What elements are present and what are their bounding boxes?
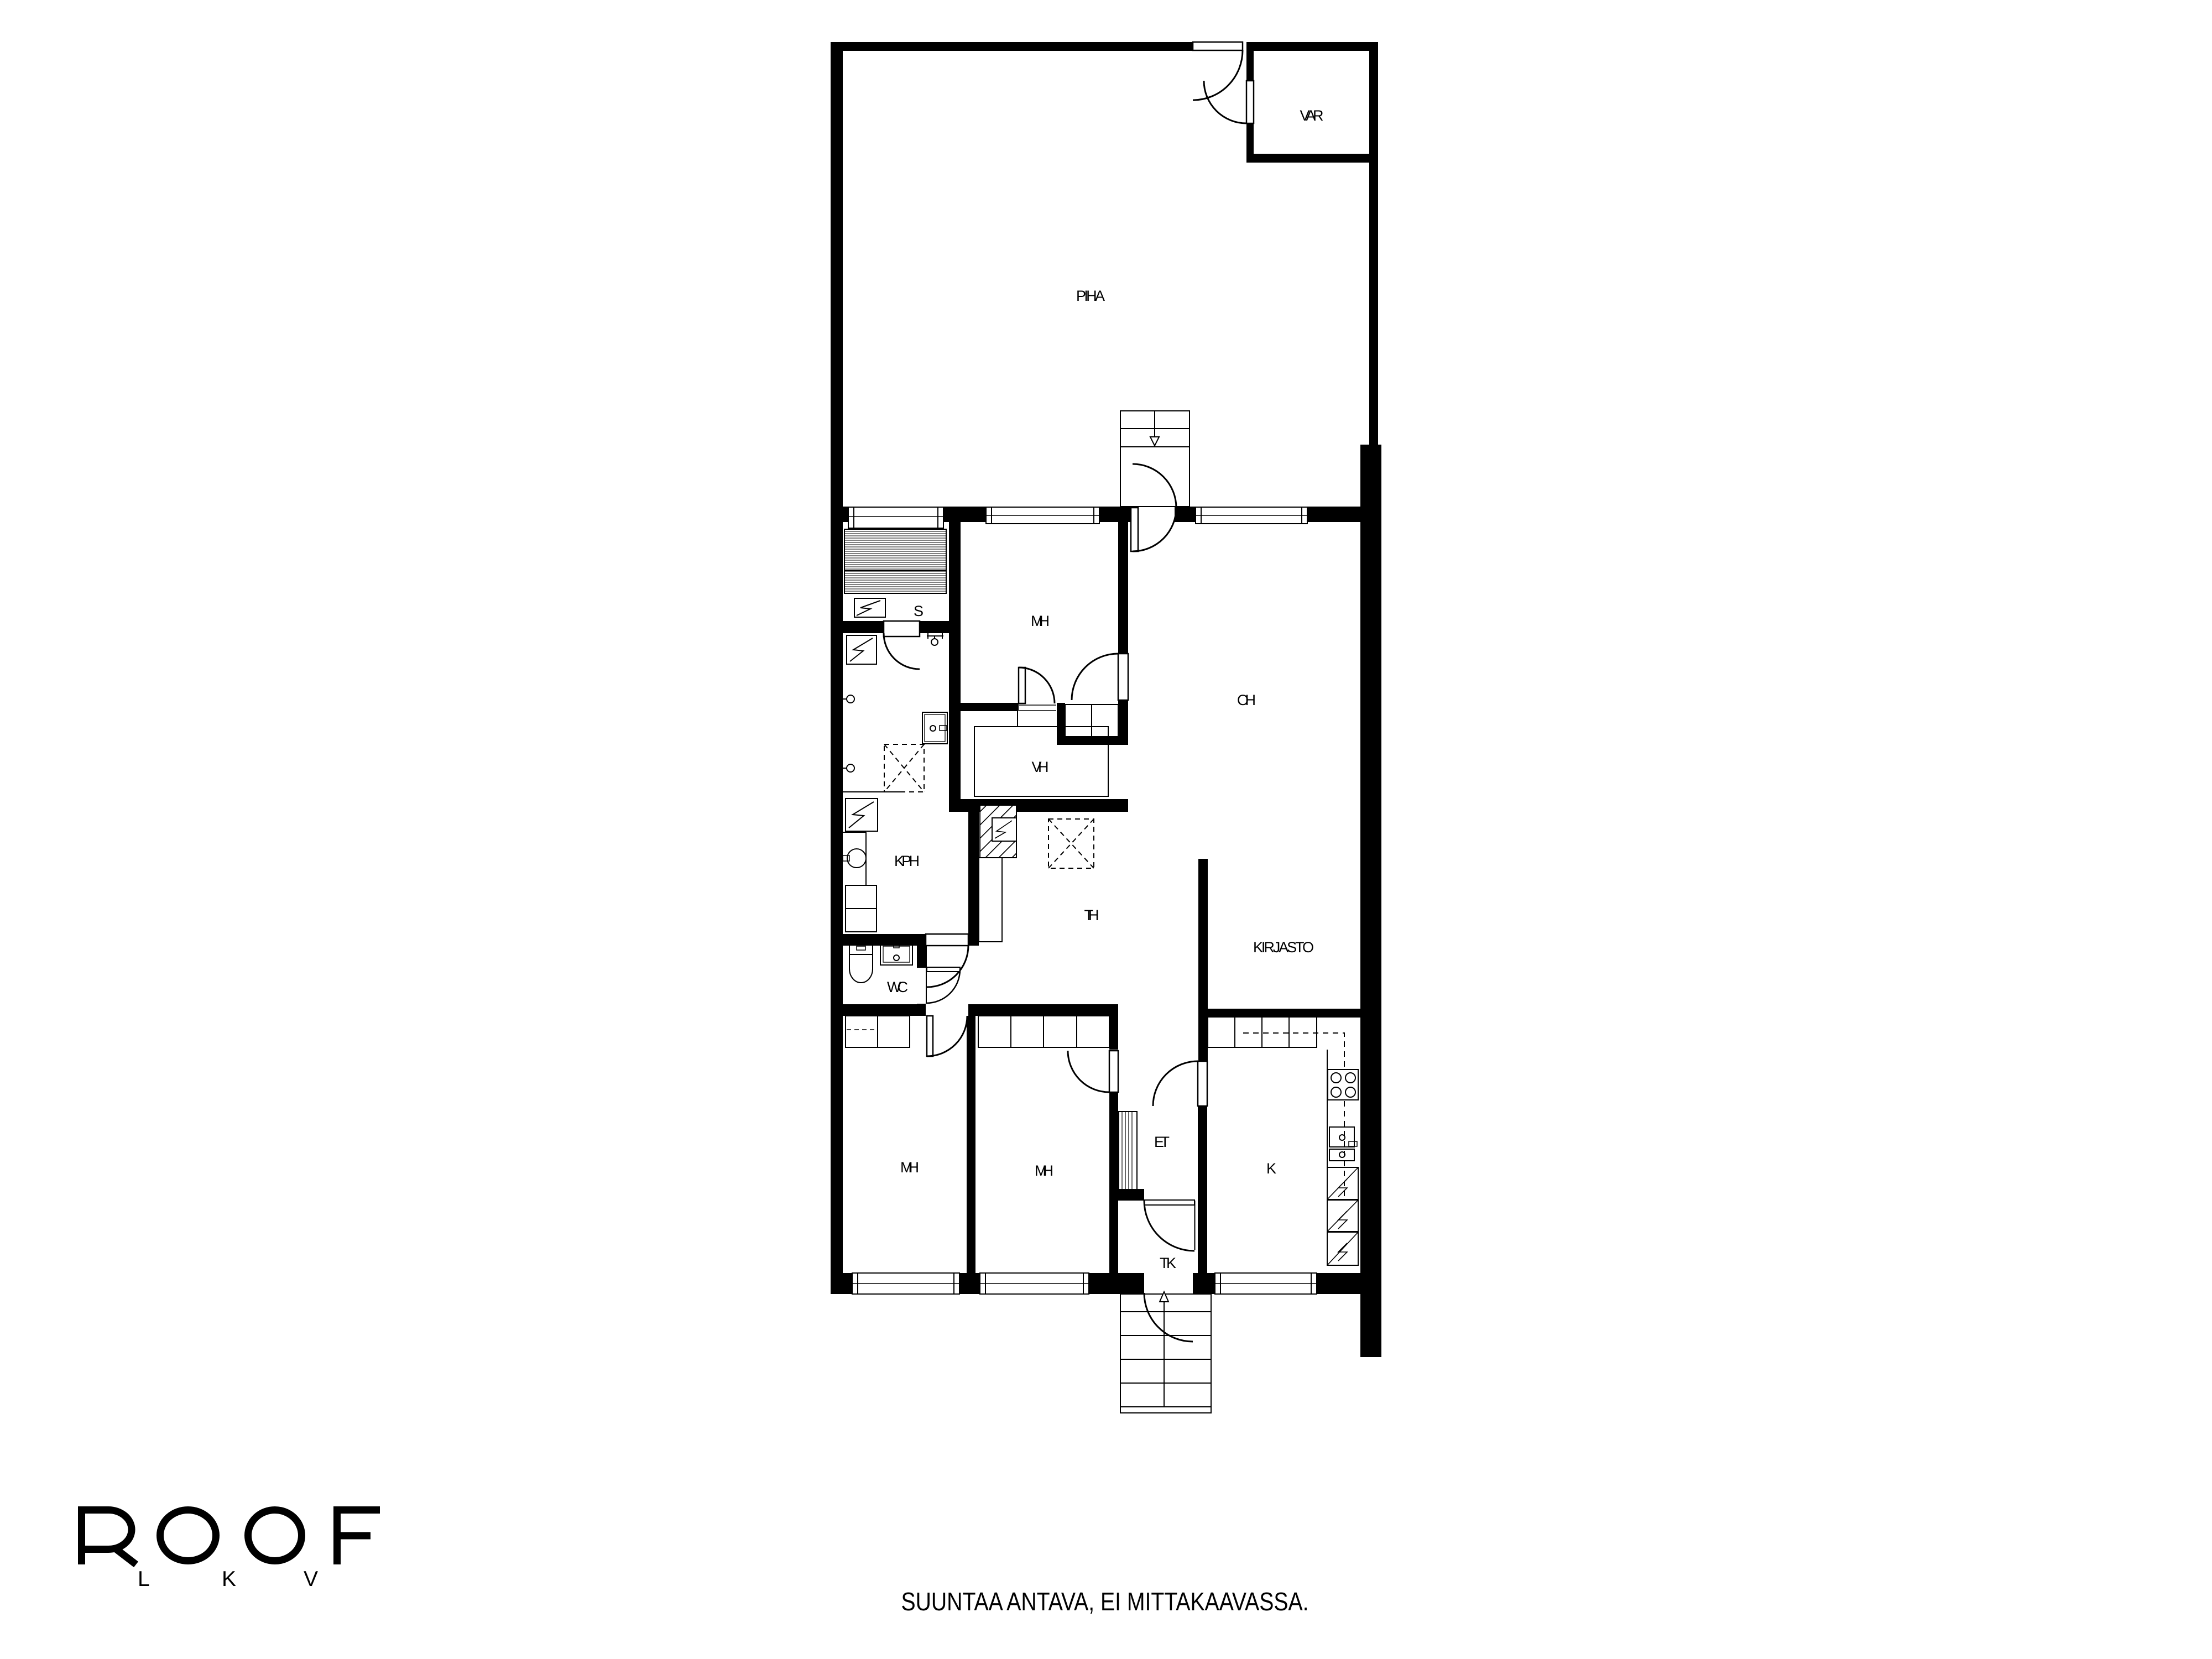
svg-text:PIHA: PIHA <box>1076 288 1105 304</box>
svg-text:TK: TK <box>1160 1255 1176 1271</box>
svg-text:VAR: VAR <box>1300 107 1324 124</box>
svg-text:KIRJASTO: KIRJASTO <box>1253 939 1314 956</box>
svg-text:V: V <box>304 1567 318 1591</box>
svg-text:K: K <box>1266 1160 1276 1177</box>
svg-text:MH: MH <box>900 1159 919 1176</box>
svg-text:SUUNTAA ANTAVA, EI MITTAKAAVAS: SUUNTAA ANTAVA, EI MITTAKAAVASSA. <box>901 1587 1309 1616</box>
svg-text:VH: VH <box>1032 759 1049 775</box>
svg-text:L: L <box>138 1567 150 1591</box>
svg-text:TH: TH <box>1084 907 1099 924</box>
svg-text:WC: WC <box>887 979 908 995</box>
svg-text:S: S <box>914 603 924 619</box>
svg-text:KPH: KPH <box>894 853 920 869</box>
svg-text:ET: ET <box>1154 1134 1170 1150</box>
svg-text:MH: MH <box>1031 613 1050 629</box>
svg-text:OH: OH <box>1237 692 1256 708</box>
svg-text:MH: MH <box>1035 1162 1053 1179</box>
svg-text:K: K <box>222 1567 236 1591</box>
